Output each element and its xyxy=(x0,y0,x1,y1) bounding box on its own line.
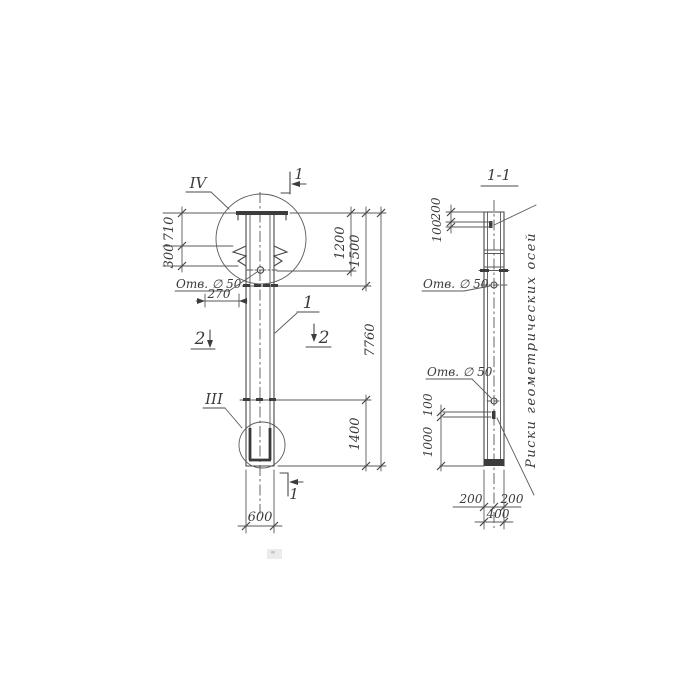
technical-drawing: IV III 710 300 Отв. ∅ 50 xyxy=(0,0,700,700)
hole-label-upper: Отв. ∅ 50 xyxy=(423,277,489,291)
dim-600-label: 600 xyxy=(248,510,273,525)
section-mark-1-top: 1 xyxy=(281,165,306,194)
joint-upper xyxy=(242,284,279,287)
detail-iii-text: III xyxy=(204,390,224,408)
section-mark-1-bottom: 1 xyxy=(280,473,303,503)
dim-200-right-label: 200 xyxy=(500,492,524,506)
dim-270-label: 270 xyxy=(207,287,231,301)
dim-1400-label: 1400 xyxy=(348,417,363,450)
detail-circle-top xyxy=(216,194,306,284)
section-mark-2-left: 2 xyxy=(191,329,215,349)
dim-100-mid-label: 100 xyxy=(421,393,435,416)
dim-710-300: 710 300 xyxy=(162,207,238,272)
dim-200-top-label: 200 xyxy=(429,197,443,221)
detail-iv-text: IV xyxy=(189,174,209,192)
section-1-top-text: 1 xyxy=(294,165,304,183)
section-title: 1-1 xyxy=(481,166,518,186)
dim-400-label: 400 xyxy=(486,507,510,521)
hole-main xyxy=(246,267,277,273)
axes-note-text: Риски геометрических осей xyxy=(524,232,539,469)
section-view: 1-1 От xyxy=(421,166,539,529)
section-title-text: 1-1 xyxy=(487,166,511,184)
scan-artifact xyxy=(267,549,282,559)
hole-callout-lower: Отв. ∅ 50 xyxy=(426,365,493,398)
section-2-left-text: 2 xyxy=(194,329,206,349)
dim-1000-label: 1000 xyxy=(421,426,435,457)
detail-label-iii: III xyxy=(203,390,242,428)
detail-label-iv: IV xyxy=(186,174,229,209)
axis-marks xyxy=(489,221,496,419)
dim-300-label: 300 xyxy=(162,244,177,269)
dim-7760-label: 7760 xyxy=(363,323,378,356)
section-1-bottom-text: 1 xyxy=(289,485,299,503)
section-mark-2-right: 2 xyxy=(306,324,331,348)
drawing-canvas: IV III 710 300 Отв. ∅ 50 xyxy=(0,0,700,700)
joint-lower xyxy=(240,398,281,401)
dim-100-1000: 100 1000 xyxy=(421,393,491,471)
main-view: IV III 710 300 Отв. ∅ 50 xyxy=(162,165,386,533)
dim-200-left-label: 200 xyxy=(459,492,483,506)
dim-200-200-400: 200 200 400 xyxy=(453,470,524,529)
dim-1200-label: 1200 xyxy=(333,226,348,259)
dim-1500-label: 1500 xyxy=(348,234,363,267)
hole-label-lower: Отв. ∅ 50 xyxy=(427,365,493,379)
part-label-text: 1 xyxy=(303,293,314,313)
pile-cap xyxy=(236,211,288,220)
part-leader: 1 xyxy=(275,293,319,333)
dim-200-100-top: 200 100 xyxy=(429,197,491,242)
dim-1400: 1400 xyxy=(348,395,370,471)
dim-100-top-label: 100 xyxy=(430,219,444,242)
dim-710-label: 710 xyxy=(162,217,177,242)
section-2-right-text: 2 xyxy=(318,328,330,348)
hole-callout-upper: Отв. ∅ 50 xyxy=(422,277,490,291)
